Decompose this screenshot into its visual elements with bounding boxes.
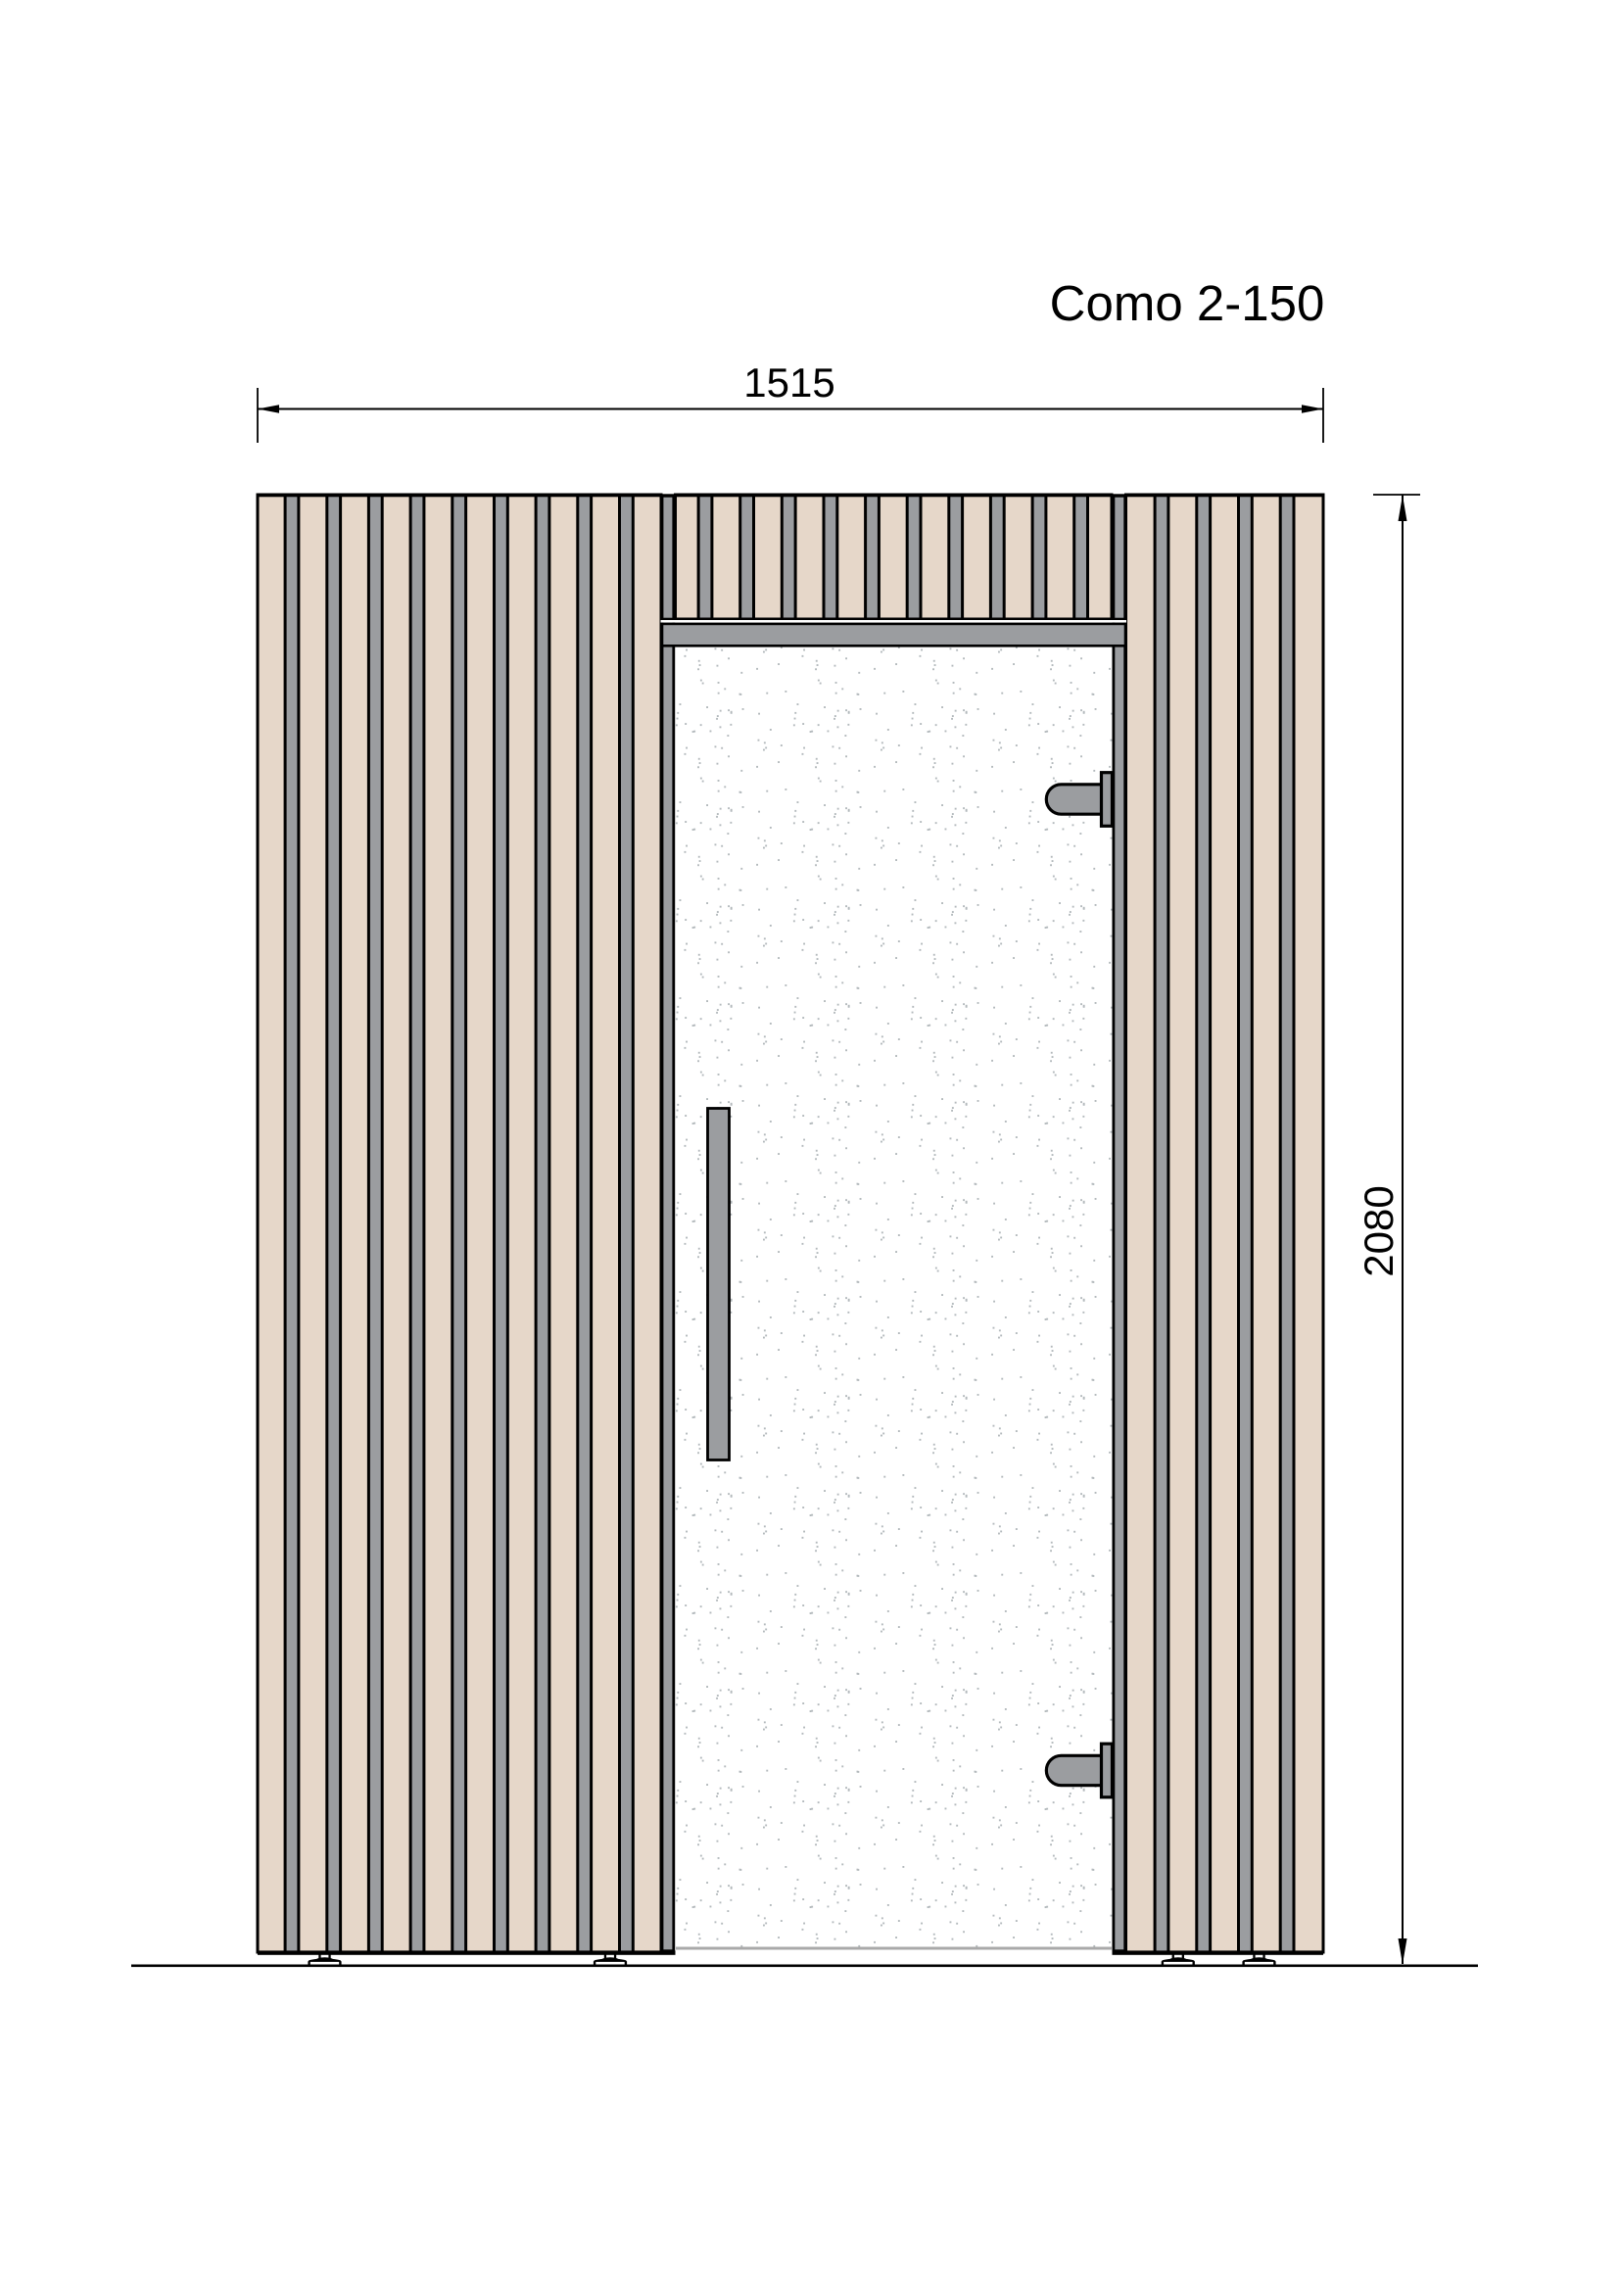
svg-text:1515: 1515 [743, 359, 834, 406]
svg-text:2080: 2080 [1356, 1185, 1402, 1276]
svg-text:Como 2-150: Como 2-150 [1050, 275, 1325, 331]
